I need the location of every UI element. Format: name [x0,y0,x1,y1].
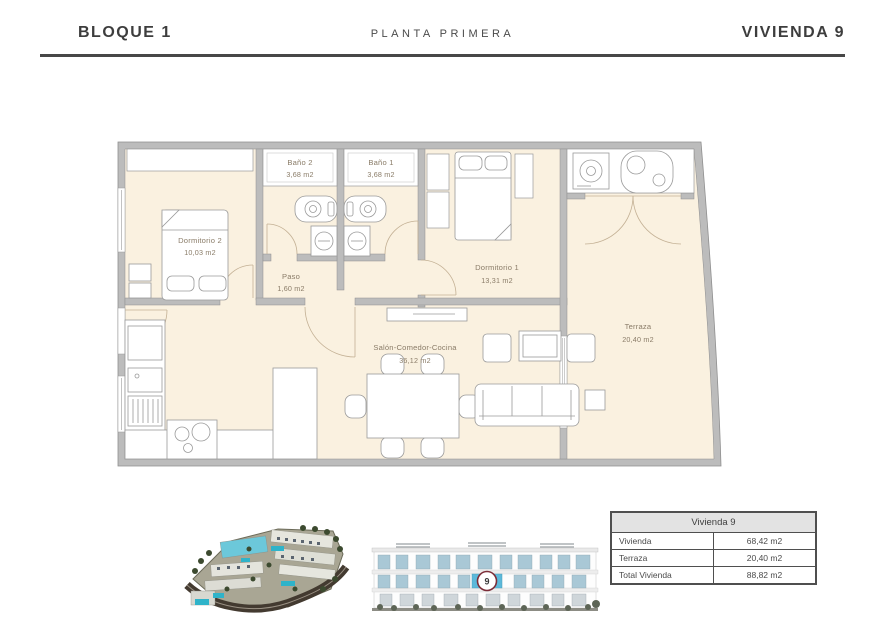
table-title: Vivienda 9 [611,512,816,533]
svg-text:Paso: Paso [282,272,300,281]
row-label: Total Vivienda [611,567,714,585]
bed-icon [455,152,511,240]
toilet-icon [344,196,386,222]
svg-text:3,68 m2: 3,68 m2 [286,170,313,179]
site-aerial-render [183,519,353,621]
sheet-header: BLOQUE 1 PLANTA PRIMERA VIVIENDA 9 [40,22,845,48]
row-value: 20,40 m2 [714,550,817,567]
row-label: Vivienda [611,533,714,550]
svg-text:9: 9 [484,577,489,587]
side-table-icon [483,334,511,362]
svg-text:Baño 2: Baño 2 [287,158,312,167]
svg-text:Terraza: Terraza [625,322,652,331]
tv-table-icon [519,331,561,361]
svg-text:Salón-Comedor-Cocina: Salón-Comedor-Cocina [373,343,457,352]
sink-icon [344,226,370,256]
row-value: 68,42 m2 [714,533,817,550]
unit-number-badge: 9 [478,572,497,591]
svg-text:1,60 m2: 1,60 m2 [277,284,304,293]
plan-sheet: BLOQUE 1 PLANTA PRIMERA VIVIENDA 9 [0,0,880,640]
sideboard-icon [387,308,467,321]
toilet-icon [295,196,337,222]
svg-text:Baño 1: Baño 1 [368,158,393,167]
boiler-icon [621,151,673,193]
unit-title: VIVIENDA 9 [742,24,845,42]
table-row: Vivienda 68,42 m2 [611,533,816,550]
side-table-icon [567,334,595,362]
row-value: 88,82 m2 [714,567,817,585]
svg-text:10,03 m2: 10,03 m2 [184,248,216,257]
washing-machine-icon [573,153,609,189]
entrance-opening [118,308,125,354]
nightstand-icon [129,264,151,298]
svg-text:Dormitorio 2: Dormitorio 2 [178,236,222,245]
sink-icon [311,226,337,256]
svg-text:36,12 m2: 36,12 m2 [399,356,431,365]
header-divider [40,54,845,57]
area-summary-table: Vivienda 9 Vivienda 68,42 m2 Terraza 20,… [610,511,817,585]
svg-text:3,68 m2: 3,68 m2 [367,170,394,179]
svg-text:20,40 m2: 20,40 m2 [622,335,654,344]
side-table-icon [585,390,605,410]
floor-title: PLANTA PRIMERA [40,28,845,40]
table-row: Terraza 20,40 m2 [611,550,816,567]
table-header-row: Vivienda 9 [611,512,816,533]
svg-text:13,31 m2: 13,31 m2 [481,276,513,285]
sofa-icon [475,384,579,426]
svg-text:Dormitorio 1: Dormitorio 1 [475,263,519,272]
floor-plan: Dormitorio 2 10,03 m2 Baño 2 3,68 m2 Bañ… [115,138,730,490]
stove-icon [167,420,217,459]
building-elevation-render: 9 [368,540,603,616]
table-row: Total Vivienda 88,82 m2 [611,567,816,585]
row-label: Terraza [611,550,714,567]
